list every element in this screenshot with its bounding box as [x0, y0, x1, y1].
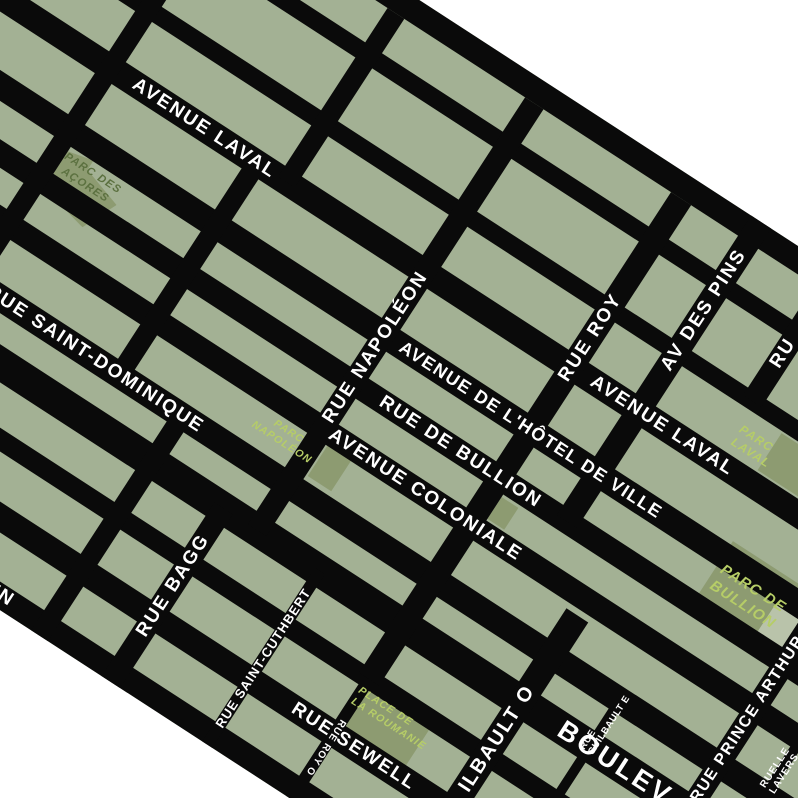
map-poster: AVENUE LAVALAVENUE LAVALAVENUE DE L'HÔTE…: [0, 0, 798, 798]
